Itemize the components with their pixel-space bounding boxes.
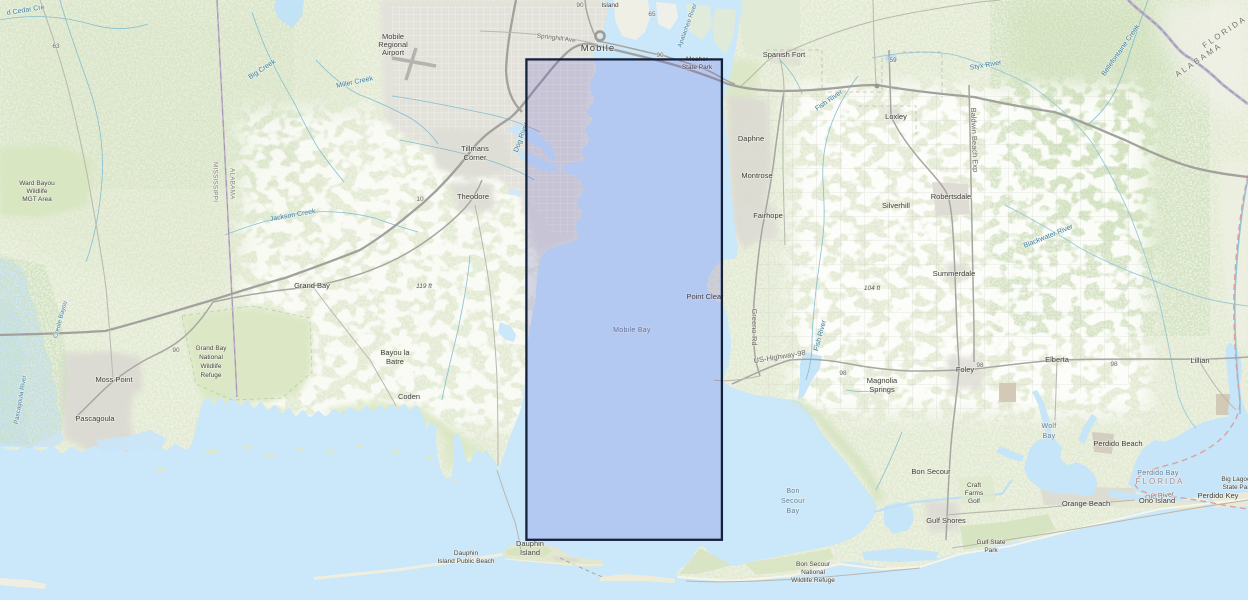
svg-text:Bayou la: Bayou la [380,348,410,357]
svg-text:59: 59 [889,57,897,64]
svg-text:Secour: Secour [781,498,805,505]
svg-text:Batre: Batre [386,357,404,366]
svg-text:Bon Secour: Bon Secour [796,561,831,568]
svg-text:90: 90 [656,52,664,59]
svg-text:Robertsdale: Robertsdale [931,192,971,201]
svg-text:65: 65 [648,11,656,18]
svg-text:Farms: Farms [965,490,984,497]
svg-text:Wildlife: Wildlife [201,363,222,370]
svg-text:Bon: Bon [786,488,799,495]
svg-text:MGT Area: MGT Area [22,196,52,203]
svg-text:Wildlife Refuge: Wildlife Refuge [791,577,835,584]
svg-text:Bay: Bay [787,508,800,515]
svg-text:Perdido Bay: Perdido Bay [1137,470,1179,477]
svg-text:Island: Island [520,548,540,557]
svg-text:10: 10 [416,196,424,203]
svg-text:National: National [199,354,223,361]
svg-text:90: 90 [576,2,584,9]
svg-text:Wildlife: Wildlife [27,188,48,195]
svg-text:63: 63 [52,43,60,50]
svg-text:MISSISSIPPI: MISSISSIPPI [212,162,219,202]
svg-text:FLORIDA: FLORIDA [1136,477,1185,486]
svg-text:98: 98 [839,370,847,377]
svg-text:Theodore: Theodore [457,192,489,201]
svg-text:Park: Park [984,547,998,554]
svg-text:National: National [801,569,825,576]
svg-text:ALABAMA: ALABAMA [229,168,236,200]
svg-text:Craft: Craft [967,482,981,489]
svg-text:Golf: Golf [968,498,980,505]
svg-text:Bay: Bay [1043,433,1056,440]
svg-text:104 ft: 104 ft [864,285,881,292]
svg-text:Daphne: Daphne [738,134,764,143]
svg-text:Refuge: Refuge [201,372,222,379]
svg-text:Perdido Beach: Perdido Beach [1093,439,1142,448]
svg-text:Gulf State: Gulf State [977,539,1006,546]
svg-text:Montrose: Montrose [741,171,772,180]
svg-text:Big Lagoo: Big Lagoo [1221,476,1248,483]
svg-text:98: 98 [976,362,984,369]
svg-text:Airport: Airport [382,48,405,57]
svg-text:Fairhope: Fairhope [753,211,783,220]
svg-text:Spanish Fort: Spanish Fort [763,50,806,59]
svg-text:Springs: Springs [869,385,895,394]
svg-text:Moss Point: Moss Point [95,375,133,384]
svg-text:Tillmans: Tillmans [461,144,489,153]
svg-text:Lillian: Lillian [1190,356,1209,365]
svg-text:Island: Island [601,2,619,9]
svg-text:Mobile: Mobile [581,43,616,54]
svg-text:Coden: Coden [398,392,420,401]
svg-text:Corner: Corner [464,153,487,162]
svg-text:Elberta: Elberta [1045,355,1070,364]
svg-text:Magnolia: Magnolia [867,376,898,385]
svg-text:Grand Bay: Grand Bay [195,345,227,352]
svg-text:Grand Bay: Grand Bay [294,281,330,290]
svg-text:Ono Island: Ono Island [1139,496,1175,505]
svg-text:90: 90 [172,347,180,354]
svg-text:Silverhill: Silverhill [882,201,910,210]
svg-text:Orange Beach: Orange Beach [1062,499,1110,508]
svg-text:119 ft: 119 ft [416,283,433,290]
svg-text:Dauphin: Dauphin [454,550,479,557]
svg-text:Greeno-Rd: Greeno-Rd [750,308,759,345]
svg-text:Summerdale: Summerdale [933,269,976,278]
svg-text:Loxley: Loxley [885,112,907,121]
svg-text:Island Public Beach: Island Public Beach [437,558,494,565]
svg-text:Bon Secour: Bon Secour [911,467,951,476]
svg-text:Gulf Shores: Gulf Shores [926,516,966,525]
svg-text:Pascagoula: Pascagoula [75,414,115,423]
svg-text:98: 98 [1110,361,1118,368]
svg-text:State Par: State Par [1222,484,1248,491]
svg-text:Ward Bayou: Ward Bayou [19,180,55,187]
svg-text:Foley: Foley [956,365,975,374]
svg-text:Perdido Key: Perdido Key [1198,491,1239,500]
svg-text:Wolf: Wolf [1041,423,1056,430]
